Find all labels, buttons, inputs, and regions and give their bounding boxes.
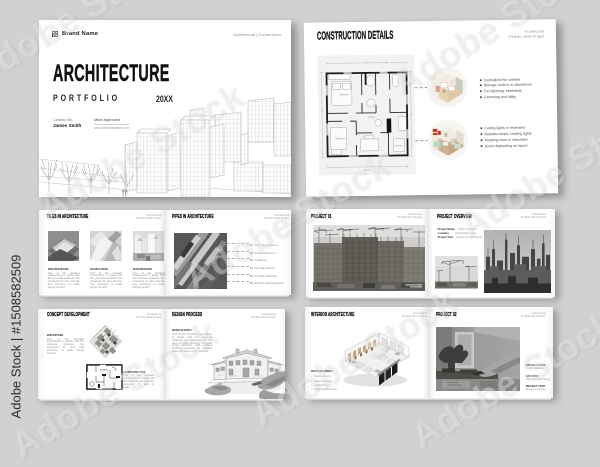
svg-text:Living: Living <box>368 116 375 119</box>
svg-text:Bedroom: Bedroom <box>339 93 349 96</box>
svg-text:Bedroom: Bedroom <box>335 137 345 140</box>
svg-text:Kitchen: Kitchen <box>394 144 403 147</box>
svg-text:14'-0": 14'-0" <box>363 168 370 172</box>
